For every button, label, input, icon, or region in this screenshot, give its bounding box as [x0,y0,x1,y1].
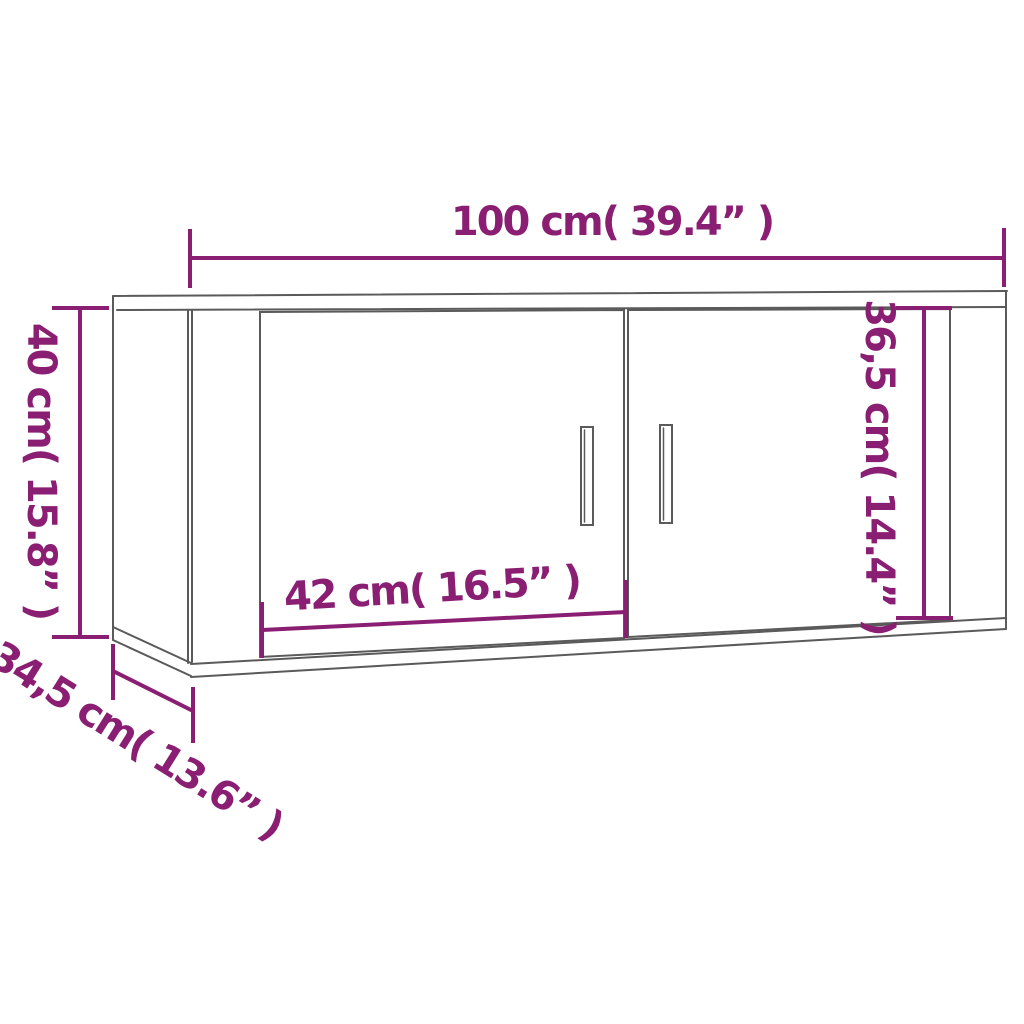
overall-depth-label: 34,5 cm( 13.6” ) [0,633,290,850]
right-door-handle [660,425,672,523]
diagram-canvas: 100 cm( 39.4” ) 40 cm( 15.8” ) 36,5 cm( … [0,0,1024,1024]
overall-height-dimension: 40 cm( 15.8” ) [18,308,109,637]
top-outer-edge [113,291,1007,296]
cabinet-dimension-diagram: 100 cm( 39.4” ) 40 cm( 15.8” ) 36,5 cm( … [0,0,1024,1024]
overall-depth-dimension: 34,5 cm( 13.6” ) [0,633,290,850]
overall-depth-dimension-line [113,671,193,711]
overall-height-label: 40 cm( 15.8” ) [18,323,64,619]
overall-width-dimension: 100 cm( 39.4” ) [190,199,1004,288]
overall-width-label: 100 cm( 39.4” ) [451,199,773,245]
left-door-handle [581,427,593,525]
door-height-label: 36,5 cm( 14.4” ) [856,299,902,634]
